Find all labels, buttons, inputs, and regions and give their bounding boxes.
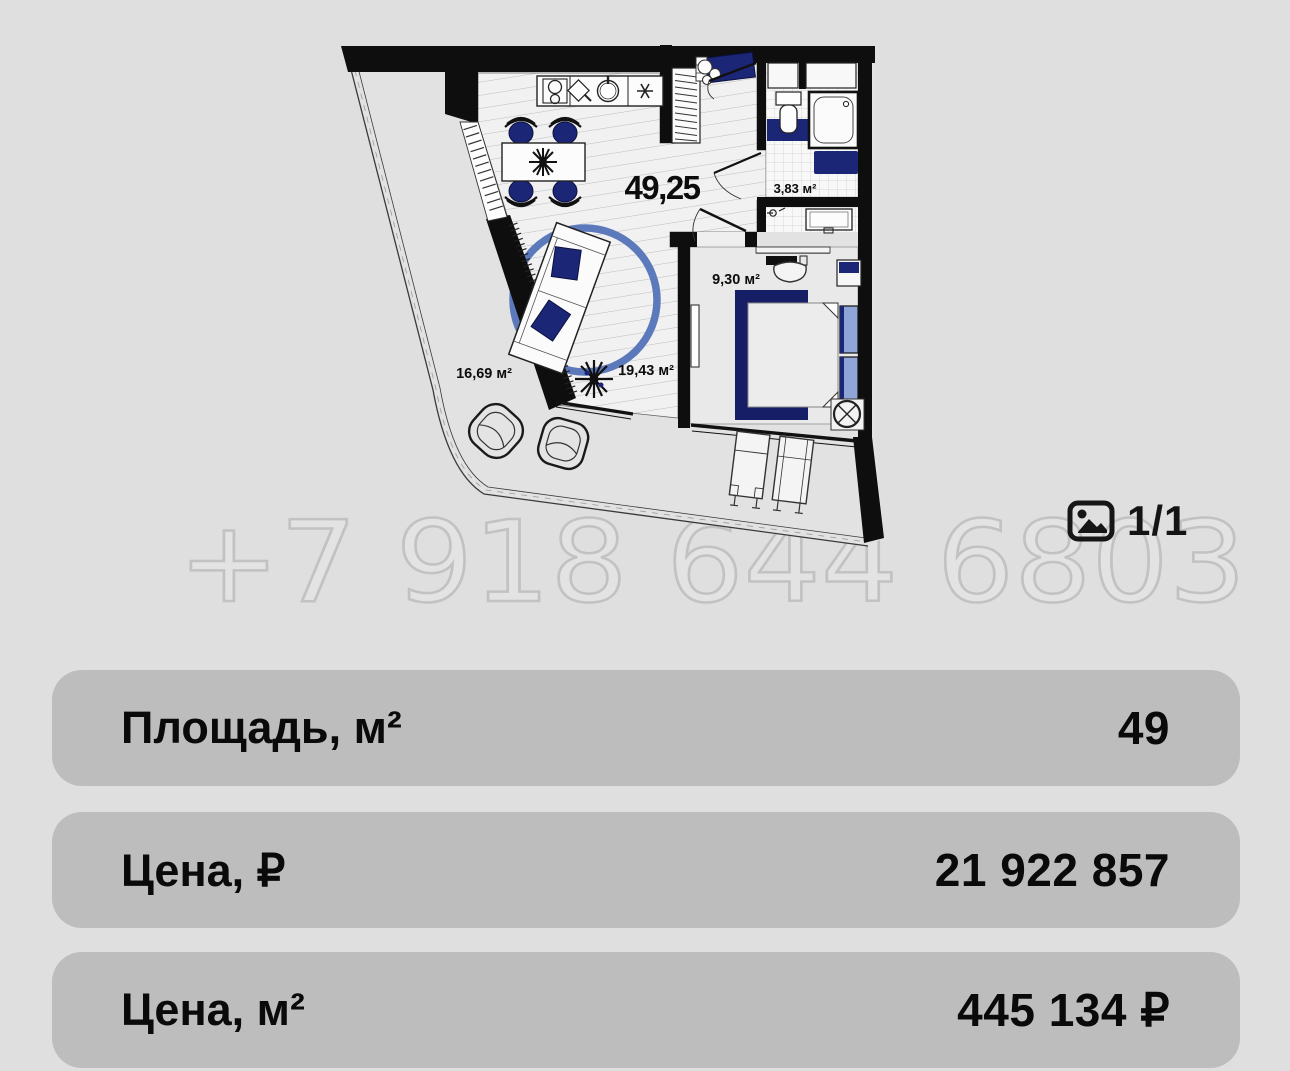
washing-machine — [814, 151, 858, 174]
row-area-label: Площадь, м² — [121, 702, 402, 754]
kitchen-counter — [537, 76, 663, 106]
room-area-label: 3,83 м² — [774, 181, 818, 196]
gallery-counter: 1/1 — [1066, 497, 1188, 545]
row-price: Цена, ₽ 21 922 857 — [52, 812, 1240, 928]
row-area-value: 49 — [1118, 701, 1170, 755]
row-price-per-m2-label: Цена, м² — [121, 984, 305, 1036]
listing-screen: +7 918 644 6803 — [0, 0, 1290, 1071]
row-price-per-m2-value: 445 134 ₽ — [957, 983, 1170, 1037]
photo-icon — [1066, 499, 1116, 543]
total-area-label: 49,25 — [624, 169, 700, 206]
room-area-label: 16,69 м² — [456, 366, 512, 382]
row-price-per-m2: Цена, м² 445 134 ₽ — [52, 952, 1240, 1068]
gallery-counter-text: 1/1 — [1127, 497, 1188, 545]
room-area-label: 9,30 м² — [712, 272, 760, 288]
floorplan-image[interactable]: +7 918 644 6803 — [0, 0, 1290, 660]
toilet — [780, 105, 797, 133]
room-area-label: 19,43 м² — [618, 363, 674, 379]
row-price-value: 21 922 857 — [935, 843, 1170, 897]
row-price-label: Цена, ₽ — [121, 844, 285, 897]
mattress — [748, 303, 838, 407]
desk-chair — [774, 262, 806, 282]
floorplan-drawing: 49,25 3,83 м² 9,30 м² 16,69 м² 19,43 м² — [341, 45, 884, 546]
table-plant — [529, 148, 557, 176]
row-area: Площадь, м² 49 — [52, 670, 1240, 786]
